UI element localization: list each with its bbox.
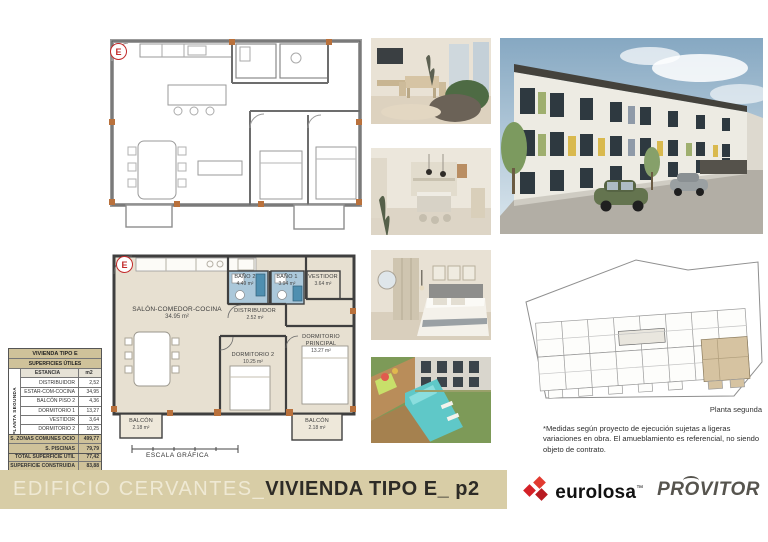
provitor-o-arc: O <box>685 480 700 499</box>
room-label-dormitorio-principal: DORMITORIO PRINCIPAL 13.27 m² <box>290 334 352 354</box>
upper-floor-plan-drawing <box>98 33 370 235</box>
table-extra-row: S. ZONAS COMUNES OCIO 499,77 <box>9 435 101 444</box>
room-label-balcon-right: BALCÓN 2.18 m² <box>292 418 342 431</box>
footer-bar: EDIFICIO CERVANTES_ VIVIENDA TIPO E_ p2 … <box>0 470 768 509</box>
room-label-dormitorio2: DORMITORIO 2 10.25 m² <box>222 352 284 365</box>
surface-table-title: VIVIENDA TIPO E <box>9 349 101 359</box>
surface-table-header: ESTANCIA m2 <box>9 369 101 378</box>
eurolosa-logo: eurolosa™ <box>524 477 643 503</box>
unit-title: VIVIENDA TIPO E_ p2 <box>265 478 479 501</box>
room-label-distribuidor: DISTRIBUIDOR 2.52 m² <box>226 308 284 321</box>
table-row: DORMITORIO 1 13,27 <box>9 407 101 416</box>
table-row: ESTAR-COM-COCINA 34,95 <box>9 388 101 397</box>
site-plan: Planta segunda <box>520 244 766 416</box>
room-label-vestidor: VESTIDOR 3.64 m² <box>303 274 343 287</box>
surface-table-subtitle: SUPERFICIES ÚTILES <box>9 359 101 369</box>
eurolosa-wordmark: eurolosa <box>555 482 636 503</box>
photo-kitchen <box>371 148 491 235</box>
room-label-bano1: BAÑO 1 3.94 m² <box>268 274 306 287</box>
photo-building-exterior <box>500 38 763 234</box>
scale-bar-label: ESCALA GRÁFICA <box>146 452 209 459</box>
table-row: DISTRIBUIDOR 2,52 <box>9 378 101 387</box>
table-total-row: TOTAL SUPERFICIE ÚTIL 77,42 <box>9 452 101 461</box>
site-plan-caption: Planta segunda <box>710 405 762 414</box>
table-row: BALCÓN PISO 2 4,36 <box>9 397 101 406</box>
photo-bedroom <box>371 250 491 340</box>
table-row: VESTIDOR 3,64 <box>9 416 101 425</box>
surface-table-extras: S. ZONAS COMUNES OCIO 499,77 S. PISCINAS… <box>8 434 102 454</box>
project-title: EDIFICIO CERVANTES_ <box>13 478 265 501</box>
brochure-sheet: E <box>0 0 768 542</box>
provitor-logo: PROVITOR <box>657 480 760 499</box>
table-total-row: SUPERFICIE CONSTRUIDA 83,88 <box>9 462 101 470</box>
room-label-salon: SALÓN-COMEDOR-COCINA 34.95 m² <box>122 306 232 322</box>
footer-title-band: EDIFICIO CERVANTES_ VIVIENDA TIPO E_ p2 <box>0 470 507 509</box>
trademark-symbol: ™ <box>636 485 643 492</box>
room-label-bano2: BAÑO 2 4.49 m² <box>224 274 266 287</box>
plan-marker-e: E <box>116 256 133 273</box>
lower-floor-plan: E SALÓN-COMEDOR-COCINA 34.95 m² BAÑO 2 4… <box>110 248 360 444</box>
room-label-balcon-left: BALCÓN 2.18 m² <box>120 418 162 431</box>
upper-floor-plan: E <box>98 33 370 235</box>
photo-pool-courtyard <box>371 357 491 443</box>
table-extra-row: S. PISCINAS 79,79 <box>9 444 101 452</box>
photo-living-room <box>371 38 491 124</box>
plan-marker-e: E <box>110 43 127 60</box>
disclaimer-text: *Medidas según proyecto de ejecución suj… <box>543 424 767 455</box>
eurolosa-squares-icon <box>524 477 550 503</box>
footer-logos: eurolosa™ PROVITOR <box>507 470 768 509</box>
